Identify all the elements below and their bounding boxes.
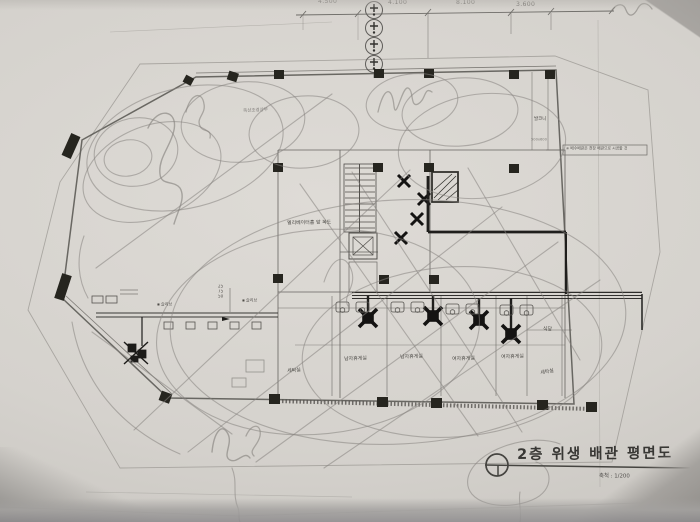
pipe-size-25: 25 xyxy=(218,285,223,289)
size-note: 500x600 xyxy=(531,138,547,142)
room-label-womens-lounge-2: 여자휴게실 xyxy=(501,354,524,360)
room-label-laundry-left: 세탁실 xyxy=(287,368,301,374)
dim-label-2: 4.100 xyxy=(388,0,407,6)
grid-bubble-icon xyxy=(366,2,383,79)
plan-linework xyxy=(0,0,700,522)
dim-label-4: 3.600 xyxy=(516,2,535,8)
drawing-scale: 축척 : 1/200 xyxy=(599,474,630,479)
pencil-scribbles xyxy=(68,4,652,522)
sleeve-symbol-icon: ▪ xyxy=(242,299,245,304)
dimension-line xyxy=(296,7,615,58)
sleeve-label: 슬리브 xyxy=(246,299,257,304)
sleeve-legend-1: ▪ 슬리브 xyxy=(157,303,172,307)
shaft-x-icon xyxy=(395,175,430,244)
room-label-womens-lounge-1: 여자휴게실 xyxy=(452,356,475,362)
room-label-dining: 식당 xyxy=(543,327,552,332)
dim-label-1: 4.500 xyxy=(318,0,337,5)
sleeve-label: 슬리브 xyxy=(161,303,172,308)
sleeve-symbol-icon: ▪ xyxy=(157,303,160,308)
sleeve-legend-2: ▪ 슬리브 xyxy=(242,299,257,303)
drawing-title: 2층 위생 배관 평면도 xyxy=(517,447,673,463)
core-block xyxy=(232,72,642,398)
pipe-size-50: 50 xyxy=(218,295,223,299)
boxed-note-text: ※ 배수배관은 천장 배관으로 시공할 것 xyxy=(566,147,627,151)
stair xyxy=(344,164,376,232)
pipe-size-75: 75 xyxy=(218,290,223,294)
room-label-mens-lounge-2: 남자휴게실 xyxy=(400,354,423,360)
room-label-mens-lounge-1: 남자휴게실 xyxy=(344,356,367,362)
room-label-corridor: 엘리베이터홀 앞 복도 xyxy=(287,220,331,226)
dim-label-3: 8.100 xyxy=(456,0,475,6)
photo-of-piping-plan: 4.500 4.100 8.100 3.600 엘리베이터홀 앞 복도 세탁실 … xyxy=(0,0,700,522)
room-label-balcony: 발코니 xyxy=(534,117,546,122)
equipment-area xyxy=(92,288,261,364)
